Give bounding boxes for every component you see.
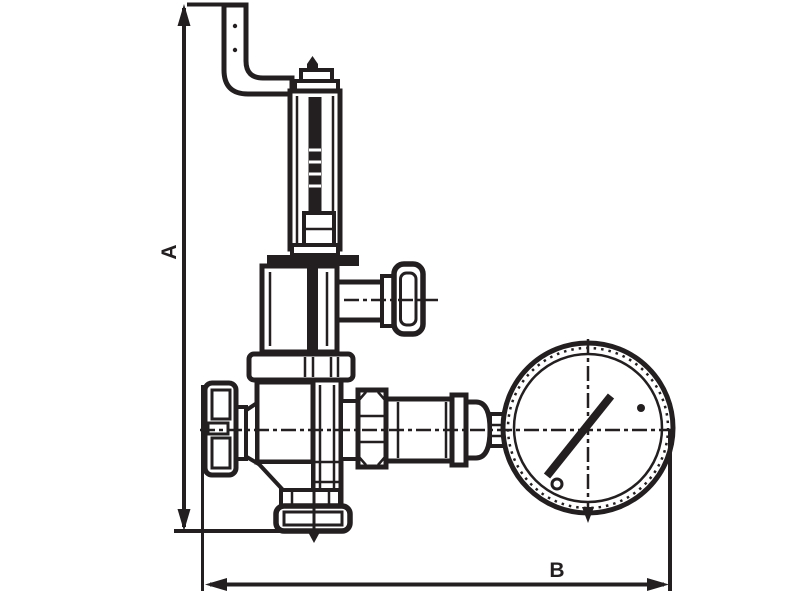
- dimension-a-arrow-down: [178, 509, 191, 531]
- body-taper: [257, 462, 313, 490]
- body-chamber: [257, 382, 314, 462]
- valve-body: [236, 354, 353, 543]
- housing-step: [292, 245, 338, 255]
- valve-stem: [307, 266, 318, 352]
- gauge-dial-dot: [637, 404, 645, 412]
- gauge-connection-assembly: [341, 390, 506, 467]
- body-axis-arrow: [308, 532, 320, 543]
- pipe-tick-mark: [233, 48, 237, 52]
- dimension-a-arrow-up: [178, 4, 191, 26]
- dimension-a-label: A: [158, 244, 181, 259]
- outlet-elbow-pipe: [224, 5, 292, 94]
- dimension-b-arrow-right: [647, 578, 669, 591]
- gauge-screw-post: [552, 479, 562, 489]
- spring-stem: [309, 97, 322, 213]
- technical-drawing-page: A B: [0, 0, 800, 598]
- dimension-b-label: B: [549, 559, 564, 582]
- relief-valve-dimensional-drawing: A B: [0, 0, 800, 598]
- body-right-column: [313, 380, 341, 505]
- pipe-tick-mark: [233, 24, 237, 28]
- dimension-b-arrow-left: [205, 578, 227, 591]
- side-tee-port: [337, 264, 438, 334]
- outlet-hex-nut: [358, 390, 386, 467]
